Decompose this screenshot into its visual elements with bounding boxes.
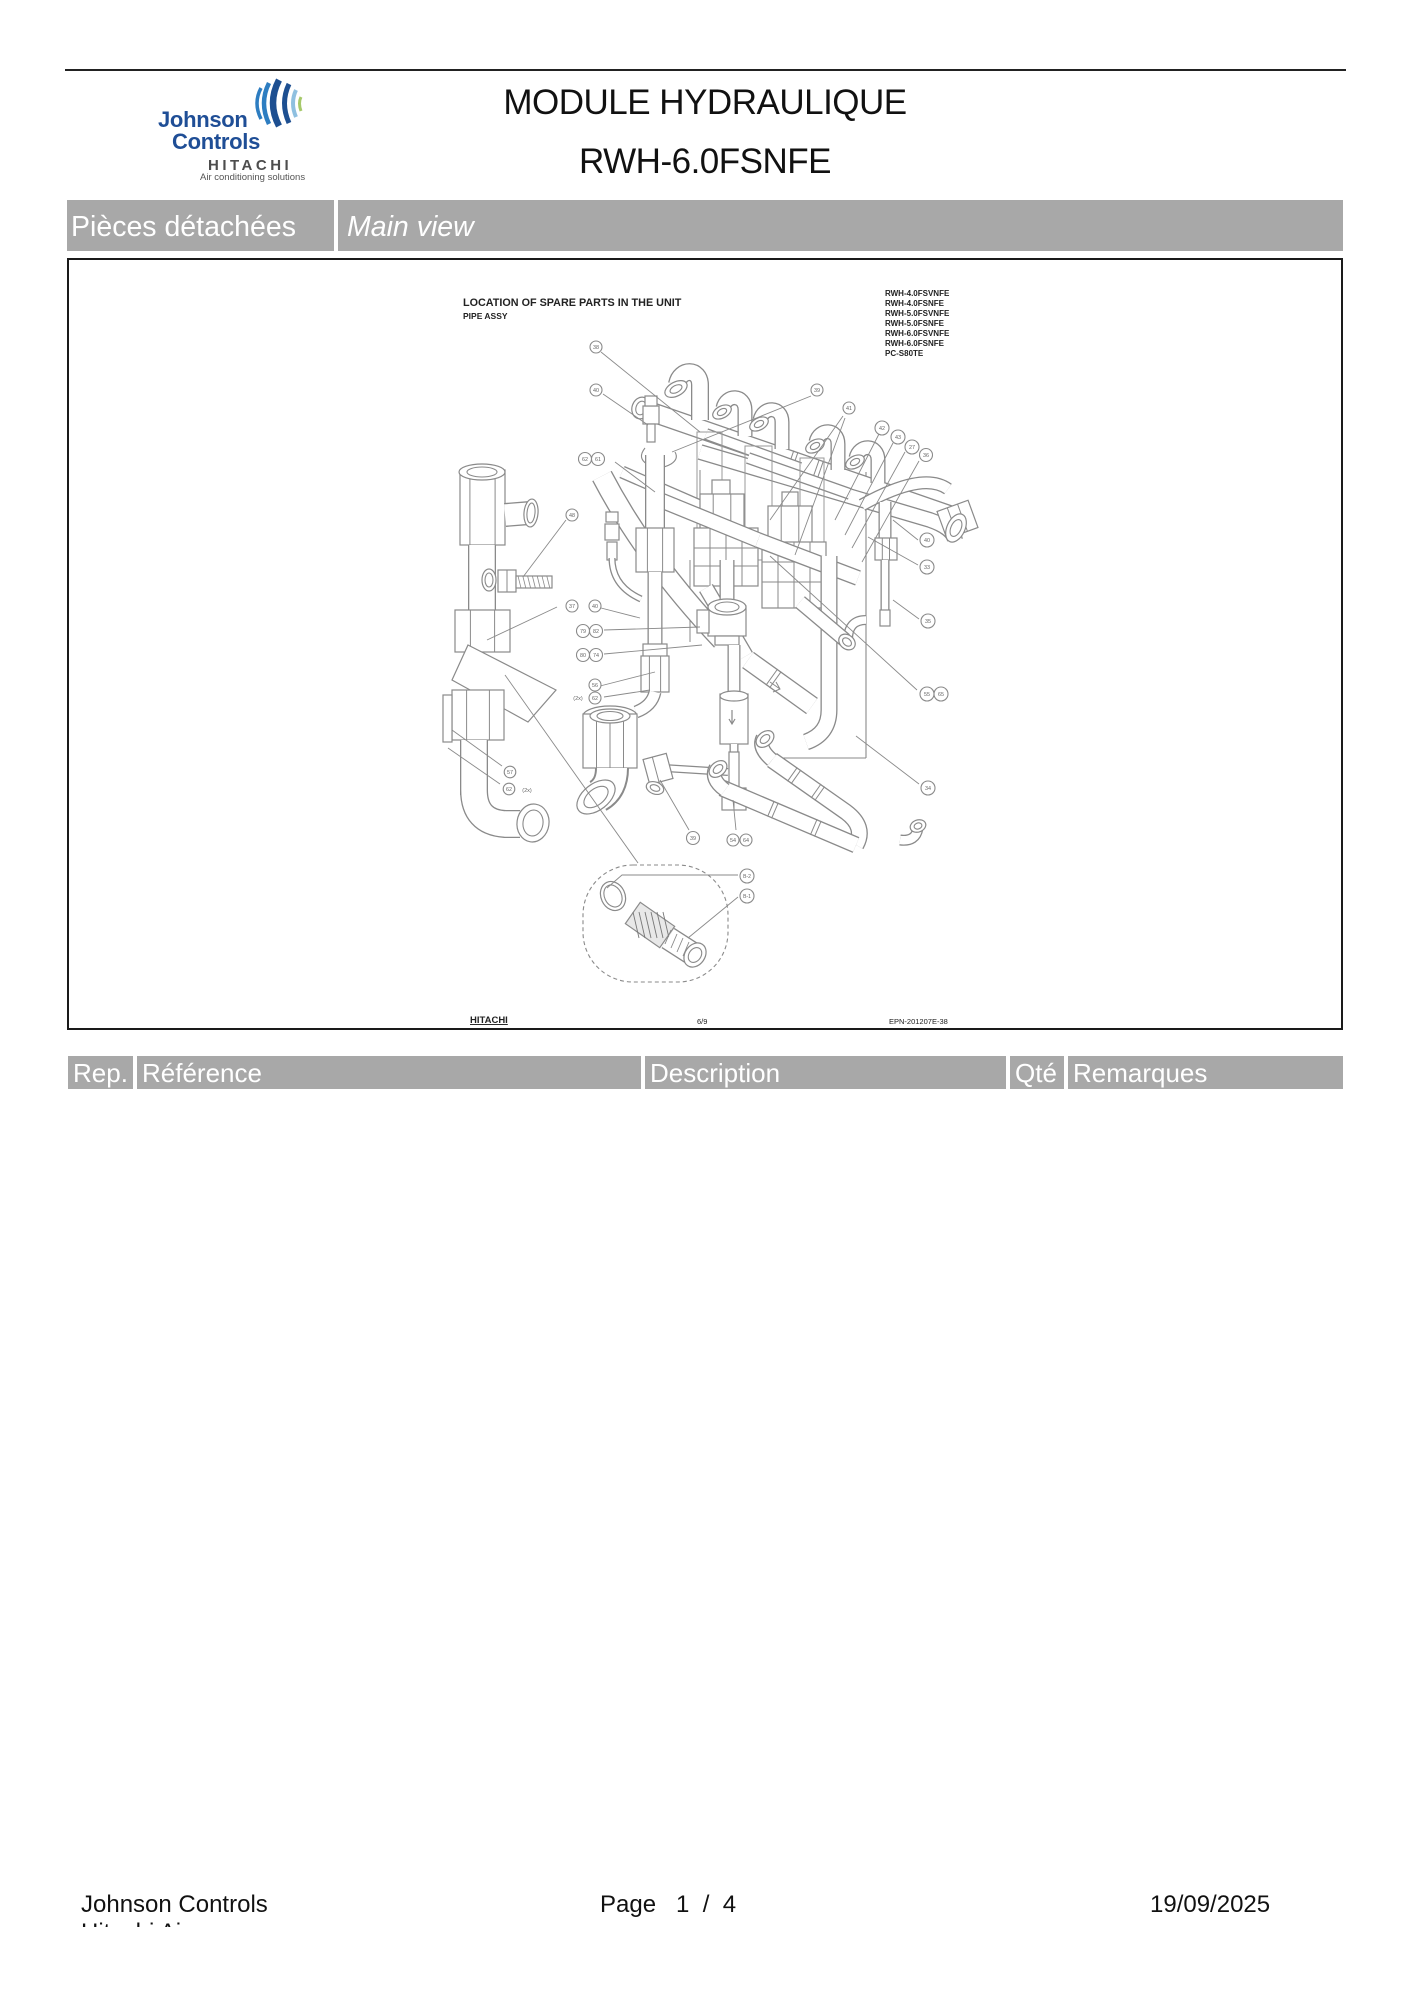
svg-text:36: 36 xyxy=(923,453,929,459)
svg-text:HITACHI: HITACHI xyxy=(470,1015,508,1026)
svg-text:65: 65 xyxy=(938,692,944,698)
svg-text:42: 42 xyxy=(879,426,885,432)
svg-text:57: 57 xyxy=(507,770,513,776)
svg-text:PIPE ASSY: PIPE ASSY xyxy=(463,311,508,321)
svg-text:40: 40 xyxy=(593,388,599,394)
svg-text:62: 62 xyxy=(506,787,512,793)
svg-text:B-2: B-2 xyxy=(743,874,751,880)
svg-text:6/9: 6/9 xyxy=(697,1017,707,1026)
svg-text:61: 61 xyxy=(595,457,601,463)
svg-text:RWH-6.0FSVNFE: RWH-6.0FSVNFE xyxy=(885,329,950,338)
svg-text:64: 64 xyxy=(743,838,749,844)
svg-text:33: 33 xyxy=(924,565,930,571)
svg-text:27: 27 xyxy=(909,445,915,451)
svg-text:RWH-6.0FSNFE: RWH-6.0FSNFE xyxy=(885,339,945,348)
svg-text:(2x): (2x) xyxy=(522,788,532,794)
svg-text:74: 74 xyxy=(593,653,599,659)
svg-text:37: 37 xyxy=(569,604,575,610)
svg-text:56: 56 xyxy=(592,683,598,689)
svg-text:RWH-4.0FSVNFE: RWH-4.0FSVNFE xyxy=(885,289,950,298)
svg-text:40: 40 xyxy=(924,538,930,544)
svg-text:RWH-5.0FSNFE: RWH-5.0FSNFE xyxy=(885,319,945,328)
svg-text:82: 82 xyxy=(593,629,599,635)
svg-text:B-1: B-1 xyxy=(743,894,751,900)
svg-text:43: 43 xyxy=(895,435,901,441)
svg-text:62: 62 xyxy=(582,457,588,463)
svg-text:41: 41 xyxy=(846,406,852,412)
svg-text:39: 39 xyxy=(690,836,696,842)
svg-text:80: 80 xyxy=(580,653,586,659)
svg-text:38: 38 xyxy=(593,345,599,351)
svg-text:EPN-201207E-38: EPN-201207E-38 xyxy=(889,1017,948,1026)
svg-text:(2x): (2x) xyxy=(573,696,583,702)
svg-text:79: 79 xyxy=(580,629,586,635)
svg-text:40: 40 xyxy=(592,604,598,610)
svg-text:LOCATION OF SPARE PARTS IN THE: LOCATION OF SPARE PARTS IN THE UNIT xyxy=(463,297,682,309)
svg-text:39: 39 xyxy=(814,388,820,394)
svg-text:PC-S80TE: PC-S80TE xyxy=(885,349,924,358)
svg-text:35: 35 xyxy=(925,619,931,625)
svg-text:RWH-5.0FSVNFE: RWH-5.0FSVNFE xyxy=(885,309,950,318)
svg-text:62: 62 xyxy=(592,696,598,702)
svg-text:RWH-4.0FSNFE: RWH-4.0FSNFE xyxy=(885,299,945,308)
svg-text:55: 55 xyxy=(924,692,930,698)
svg-text:48: 48 xyxy=(569,513,575,519)
svg-text:34: 34 xyxy=(925,786,931,792)
svg-text:54: 54 xyxy=(730,838,736,844)
